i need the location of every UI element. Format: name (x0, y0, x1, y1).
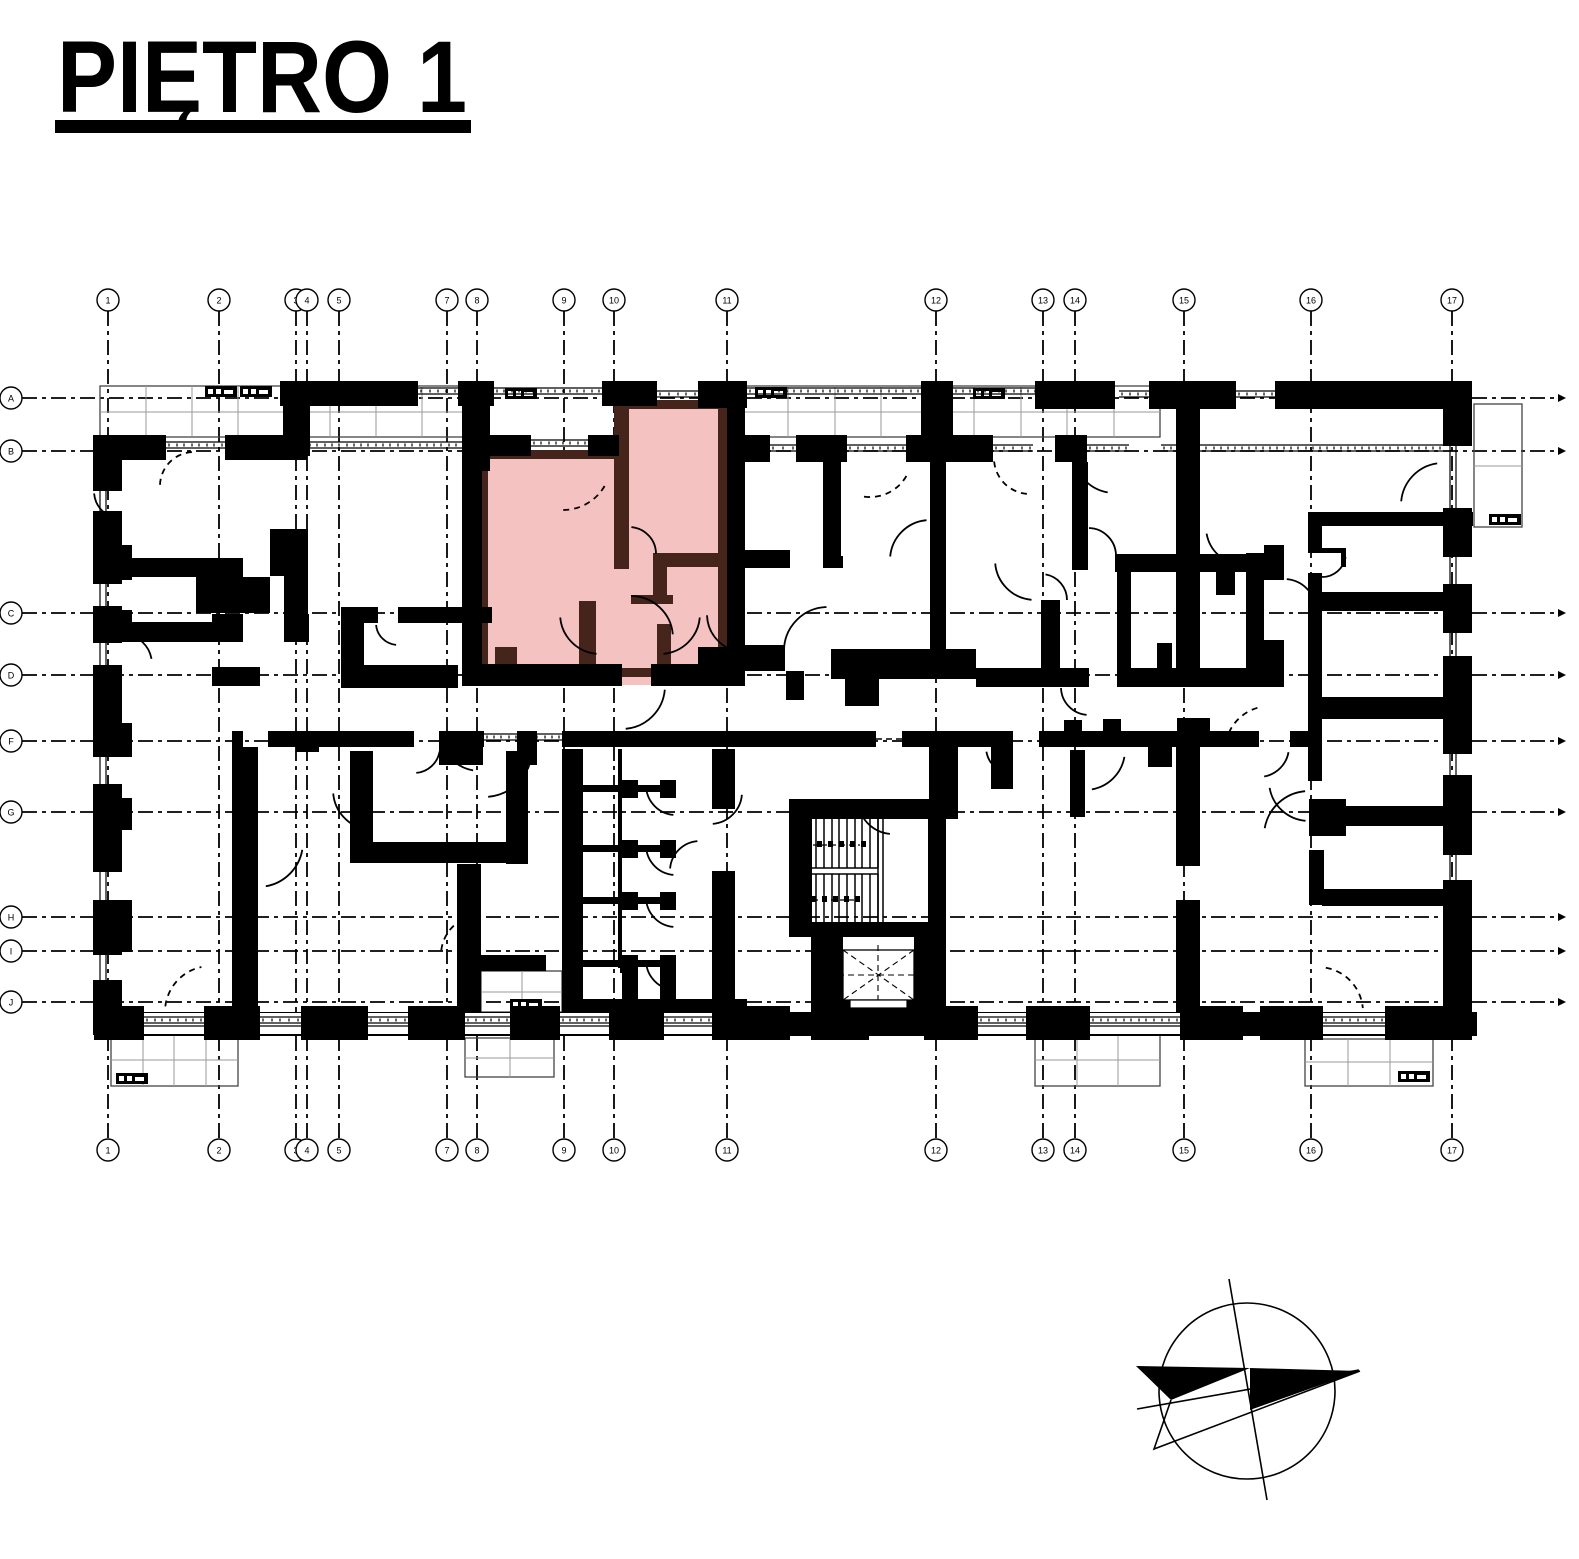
svg-text:5: 5 (336, 296, 341, 306)
svg-text:13: 13 (1038, 296, 1048, 306)
svg-text:1: 1 (105, 296, 110, 306)
svg-text:16: 16 (1306, 1146, 1316, 1156)
svg-text:D: D (8, 671, 15, 681)
svg-text:10: 10 (609, 296, 619, 306)
svg-text:9: 9 (561, 296, 566, 306)
svg-text:1: 1 (105, 1146, 110, 1156)
svg-text:H: H (8, 913, 15, 923)
svg-text:14: 14 (1070, 1146, 1080, 1156)
svg-text:14: 14 (1070, 296, 1080, 306)
svg-text:12: 12 (931, 1146, 941, 1156)
svg-text:17: 17 (1447, 1146, 1457, 1156)
svg-text:15: 15 (1179, 1146, 1189, 1156)
svg-text:9: 9 (561, 1146, 566, 1156)
svg-text:I: I (10, 947, 13, 957)
svg-text:8: 8 (474, 296, 479, 306)
svg-text:7: 7 (444, 1146, 449, 1156)
svg-text:PIĘTRO 1: PIĘTRO 1 (57, 20, 467, 134)
svg-text:4: 4 (304, 296, 309, 306)
svg-text:7: 7 (444, 296, 449, 306)
svg-text:8: 8 (474, 1146, 479, 1156)
svg-text:4: 4 (304, 1146, 309, 1156)
svg-text:13: 13 (1038, 1146, 1048, 1156)
svg-text:F: F (8, 737, 14, 747)
svg-text:5: 5 (336, 1146, 341, 1156)
svg-text:16: 16 (1306, 296, 1316, 306)
svg-text:2: 2 (216, 1146, 221, 1156)
svg-text:B: B (8, 447, 14, 457)
svg-text:G: G (7, 808, 14, 818)
svg-text:11: 11 (722, 1146, 731, 1156)
svg-text:15: 15 (1179, 296, 1189, 306)
svg-text:17: 17 (1447, 296, 1457, 306)
svg-text:12: 12 (931, 296, 941, 306)
svg-text:A: A (8, 394, 14, 404)
svg-text:11: 11 (722, 296, 731, 306)
svg-text:J: J (9, 998, 14, 1008)
svg-text:10: 10 (609, 1146, 619, 1156)
svg-text:C: C (8, 609, 15, 619)
svg-text:2: 2 (216, 296, 221, 306)
